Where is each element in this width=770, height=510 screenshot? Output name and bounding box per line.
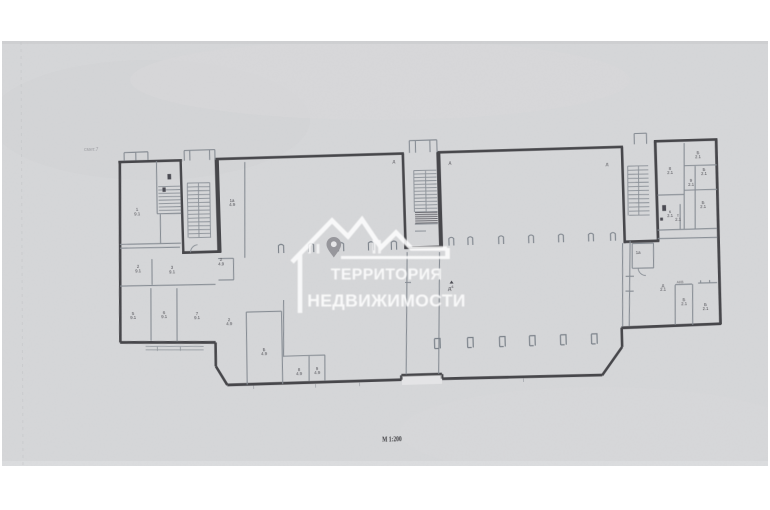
svg-text:смет.7: смет.7 <box>84 147 99 153</box>
svg-text:НЕДВИЖИМОСТИ: НЕДВИЖИМОСТИ <box>307 291 465 311</box>
svg-text:М 1:200: М 1:200 <box>382 434 402 444</box>
svg-text:ТЕРРИТОРИЯ: ТЕРРИТОРИЯ <box>331 267 442 284</box>
svg-text:АКВ: АКВ <box>677 280 685 284</box>
svg-text:1а: 1а <box>636 250 642 255</box>
